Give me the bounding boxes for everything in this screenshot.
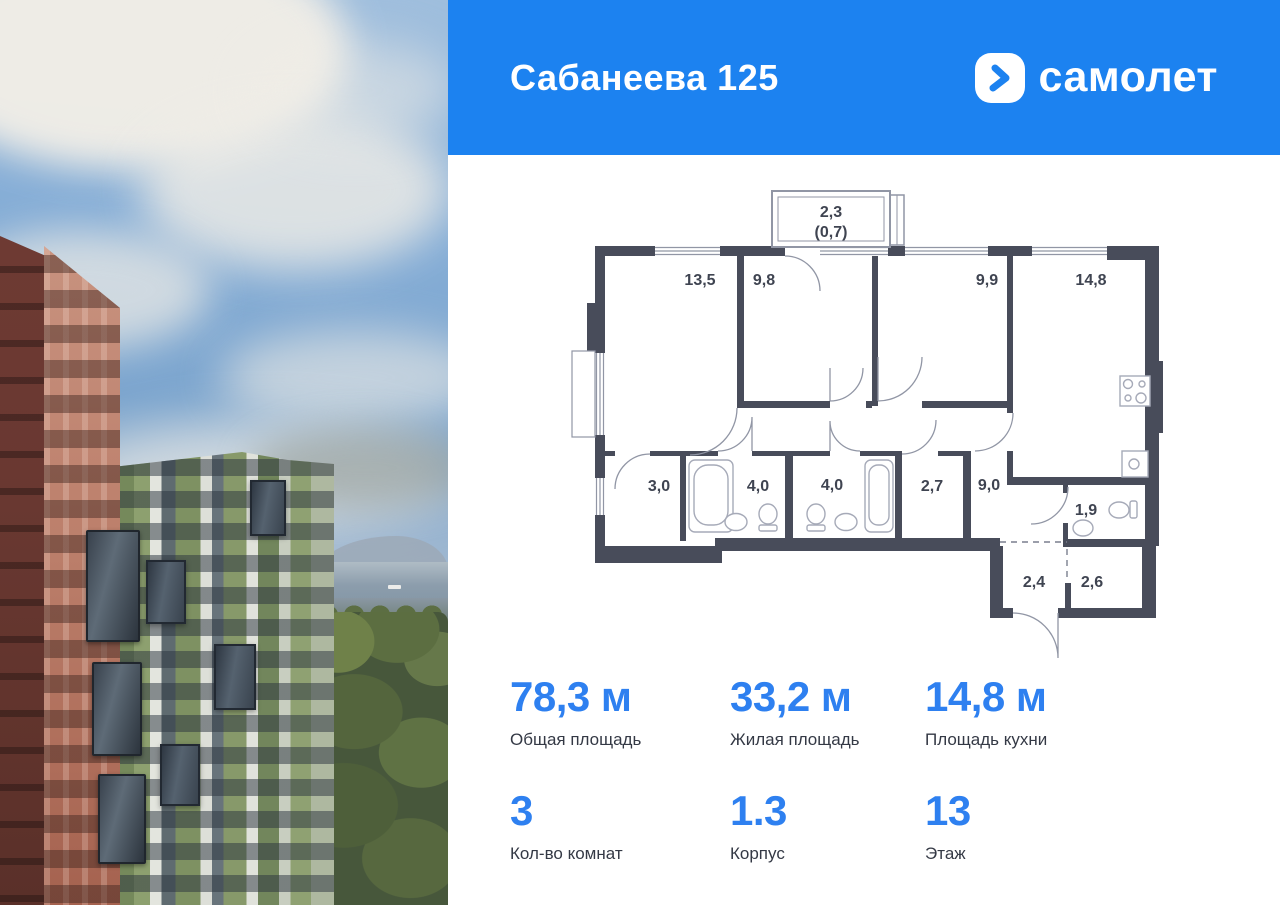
walls — [587, 246, 1163, 618]
balcony-outline — [772, 191, 904, 247]
bathtub-icon — [689, 460, 893, 532]
stat-floor: 13 Этаж — [925, 790, 1175, 864]
toilet-icon — [759, 501, 1137, 531]
samolet-logo: самолет — [975, 53, 1218, 103]
stat-value: 13 — [925, 790, 1175, 832]
forest — [314, 612, 448, 905]
glass-balcony — [160, 744, 200, 806]
stat-value: 78,3 м — [510, 676, 730, 718]
cloud — [250, 40, 448, 140]
sink-icon — [725, 451, 1148, 536]
dashed-line — [1000, 542, 1067, 581]
stat-label: Кол-во комнат — [510, 844, 730, 864]
glass-balcony — [92, 662, 142, 756]
door-arc — [615, 256, 1068, 658]
room-area-label: 9,0 — [978, 477, 1000, 494]
listing-card[interactable]: Сабанеева 125 самолет — [0, 0, 1280, 905]
stove-icon — [1120, 376, 1150, 406]
building-photo — [0, 0, 448, 905]
stat-label: Корпус — [730, 844, 925, 864]
room-area-label: 13,5 — [684, 272, 715, 289]
stat-label: Жилая площадь — [730, 730, 925, 750]
room-area-label: 1,9 — [1075, 502, 1097, 519]
room-area-label: 4,0 — [821, 477, 843, 494]
red-tower-dark-face — [0, 236, 46, 905]
window — [572, 248, 1107, 516]
room-area-label: 14,8 — [1075, 272, 1106, 289]
stat-rooms-count: 3 Кол-во комнат — [510, 790, 730, 864]
stat-label: Площадь кухни — [925, 730, 1175, 750]
glass-balcony — [214, 644, 256, 710]
room-area-label: 3,0 — [648, 478, 670, 495]
stat-label: Этаж — [925, 844, 1175, 864]
header-bar: Сабанеева 125 самолет — [448, 0, 1280, 155]
plane-arrow-icon — [985, 63, 1015, 93]
room-area-label: 9,8 — [753, 272, 775, 289]
project-title: Сабанеева 125 — [510, 57, 779, 99]
stat-value: 3 — [510, 790, 730, 832]
room-area-label: 4,0 — [747, 478, 769, 495]
stat-living-area: 33,2 м Жилая площадь — [730, 676, 925, 750]
room-area-label: 2,4 — [1023, 574, 1045, 591]
stat-total-area: 78,3 м Общая площадь — [510, 676, 730, 750]
glass-balcony — [250, 480, 286, 536]
room-area-label: 2,6 — [1081, 574, 1103, 591]
room-area-label: 2,7 — [921, 478, 943, 495]
glass-balcony — [86, 530, 140, 642]
room-area-label: 9,9 — [976, 272, 998, 289]
content-panel: 2,3 (0,7) 13,5 9,8 9,9 14,8 3,0 4,0 4,0 … — [448, 155, 1280, 905]
stat-value: 14,8 м — [925, 676, 1175, 718]
samolet-logo-text: самолет — [1039, 53, 1218, 102]
samolet-logo-mark — [975, 53, 1025, 103]
stat-kitchen-area: 14,8 м Площадь кухни — [925, 676, 1175, 750]
room-area-label: 2,3 — [820, 204, 842, 221]
stats-grid: 78,3 м Общая площадь 33,2 м Жилая площад… — [510, 676, 1230, 864]
room-area-label: (0,7) — [815, 224, 848, 241]
stat-building: 1.3 Корпус — [730, 790, 925, 864]
ship — [388, 585, 401, 589]
stat-label: Общая площадь — [510, 730, 730, 750]
glass-balcony — [146, 560, 186, 624]
stat-value: 33,2 м — [730, 676, 925, 718]
floor-plan: 2,3 (0,7) 13,5 9,8 9,9 14,8 3,0 4,0 4,0 … — [570, 183, 1170, 683]
glass-balcony — [98, 774, 146, 864]
stat-value: 1.3 — [730, 790, 925, 832]
